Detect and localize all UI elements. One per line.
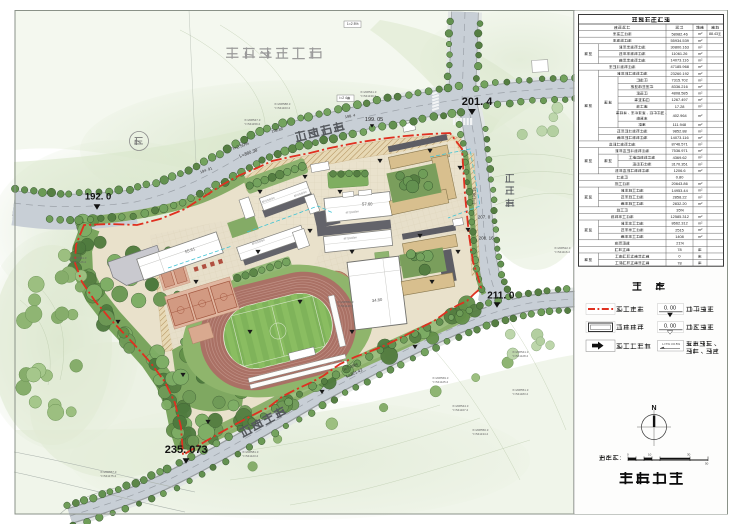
svg-text:14073.116: 14073.116 xyxy=(671,58,689,63)
svg-text:m²: m² xyxy=(698,129,703,133)
svg-text:Y=541126.2: Y=541126.2 xyxy=(70,260,86,264)
svg-text:9852.88: 9852.88 xyxy=(673,129,687,134)
svg-text:20643.86: 20643.86 xyxy=(672,181,688,186)
svg-text:17.28: 17.28 xyxy=(675,104,685,109)
svg-text:78: 78 xyxy=(677,247,681,252)
svg-text:2515: 2515 xyxy=(675,227,684,232)
svg-text:208. 16: 208. 16 xyxy=(479,236,495,241)
svg-text:21%: 21% xyxy=(676,241,684,246)
svg-text:111.948: 111.948 xyxy=(673,122,687,127)
svg-text:m²: m² xyxy=(698,78,703,82)
svg-text:Y=541159.2: Y=541159.2 xyxy=(244,122,260,126)
svg-text:58982.46: 58982.46 xyxy=(672,31,688,36)
svg-text:8746.571: 8746.571 xyxy=(672,142,688,147)
svg-text:m²: m² xyxy=(698,202,703,206)
svg-text:402.964: 402.964 xyxy=(673,113,688,118)
svg-text:m²: m² xyxy=(698,169,703,173)
svg-text:7536.971: 7536.971 xyxy=(672,148,688,153)
svg-text:m²: m² xyxy=(698,123,703,127)
svg-text:m²: m² xyxy=(698,98,703,102)
svg-text:m²: m² xyxy=(698,39,703,43)
svg-text:m²: m² xyxy=(698,215,703,219)
svg-text:m²: m² xyxy=(698,72,703,76)
svg-text:7315.702: 7315.702 xyxy=(672,77,688,82)
svg-text:2858.22: 2858.22 xyxy=(673,194,687,199)
svg-text:Y=541167.2: Y=541167.2 xyxy=(452,408,468,412)
svg-text:m²: m² xyxy=(698,105,703,109)
svg-text:0.80: 0.80 xyxy=(676,175,684,180)
svg-text:Y=541134.2: Y=541134.2 xyxy=(472,432,488,436)
svg-text:L=7% i=0.5%: L=7% i=0.5% xyxy=(662,342,680,346)
svg-text:211. 0: 211. 0 xyxy=(487,291,515,302)
svg-text:199. 05: 199. 05 xyxy=(365,117,383,123)
svg-text:4808.585: 4808.585 xyxy=(672,91,688,96)
svg-text:0. 00: 0. 00 xyxy=(664,323,676,329)
svg-text:30: 30 xyxy=(687,453,691,457)
svg-text:1408: 1408 xyxy=(675,234,684,239)
svg-text:235. 073: 235. 073 xyxy=(165,444,208,456)
svg-text:m²: m² xyxy=(698,92,703,96)
svg-text:Y=541125.2: Y=541125.2 xyxy=(432,380,448,384)
svg-text:201. 4: 201. 4 xyxy=(462,96,493,108)
svg-text:m²: m² xyxy=(698,189,703,193)
svg-text:78: 78 xyxy=(677,260,681,265)
svg-text:11061.26: 11061.26 xyxy=(672,51,688,56)
svg-text:Y=541140.2: Y=541140.2 xyxy=(337,304,353,308)
svg-text:i=2 4: i=2 4 xyxy=(340,96,348,100)
svg-text:Y=541175.2: Y=541175.2 xyxy=(100,474,116,478)
svg-text:1=2 8%: 1=2 8% xyxy=(347,22,359,26)
svg-text:50: 50 xyxy=(705,462,709,466)
svg-text:m²: m² xyxy=(698,149,703,153)
svg-text:m²: m² xyxy=(698,235,703,239)
svg-text:m²: m² xyxy=(698,32,703,36)
svg-text:m²: m² xyxy=(698,143,703,147)
svg-text:Y=541116.2: Y=541116.2 xyxy=(554,250,570,254)
svg-text:12585.312: 12585.312 xyxy=(671,214,689,219)
svg-text:m²: m² xyxy=(698,162,703,166)
svg-text:47185.968: 47185.968 xyxy=(671,64,689,69)
svg-text:8662.312: 8662.312 xyxy=(672,221,688,226)
svg-text:10: 10 xyxy=(648,453,652,457)
svg-text:m²: m² xyxy=(698,228,703,232)
svg-text:m²: m² xyxy=(698,156,703,160)
svg-text:1267.497: 1267.497 xyxy=(672,97,688,102)
svg-text:3170.351: 3170.351 xyxy=(672,161,688,166)
svg-text:8336.216: 8336.216 xyxy=(672,84,688,89)
svg-text:m²: m² xyxy=(698,114,703,118)
svg-text:14073.116: 14073.116 xyxy=(671,135,689,140)
svg-text:0. 00: 0. 00 xyxy=(664,305,676,311)
svg-text:57.60: 57.60 xyxy=(362,202,373,207)
svg-text:m²: m² xyxy=(698,222,703,226)
svg-text:Y=541128.2: Y=541128.2 xyxy=(512,354,528,358)
svg-text:N: N xyxy=(651,405,656,412)
svg-text:88.43: 88.43 xyxy=(709,32,718,36)
svg-text:23260.192: 23260.192 xyxy=(671,71,689,76)
svg-text:Y=541163.2: Y=541163.2 xyxy=(274,106,290,110)
svg-text::: : xyxy=(619,455,621,462)
svg-text:207. 0: 207. 0 xyxy=(478,215,491,220)
svg-text:55934.539: 55934.539 xyxy=(671,38,689,43)
svg-text:m²: m² xyxy=(698,182,703,186)
svg-text:m²: m² xyxy=(698,52,703,56)
svg-text:Y=541123.2: Y=541123.2 xyxy=(242,454,258,458)
svg-text:14953.44: 14953.44 xyxy=(672,188,689,193)
svg-text:192. 0: 192. 0 xyxy=(85,191,111,202)
svg-text:m²: m² xyxy=(698,195,703,199)
svg-text:35%: 35% xyxy=(676,208,684,213)
svg-text:1206.6: 1206.6 xyxy=(674,168,686,173)
svg-text:4369.62: 4369.62 xyxy=(673,155,687,160)
svg-text:m²: m² xyxy=(698,45,703,49)
svg-text:Y=541130.2: Y=541130.2 xyxy=(360,94,376,98)
svg-text:30800.163: 30800.163 xyxy=(671,45,689,50)
svg-text:m²: m² xyxy=(698,85,703,89)
svg-text:m²: m² xyxy=(698,136,703,140)
svg-text:2832.20: 2832.20 xyxy=(673,201,688,206)
svg-text:m²: m² xyxy=(698,65,703,69)
svg-text:Y=541183.2: Y=541183.2 xyxy=(512,392,528,396)
svg-text:m²: m² xyxy=(698,59,703,63)
